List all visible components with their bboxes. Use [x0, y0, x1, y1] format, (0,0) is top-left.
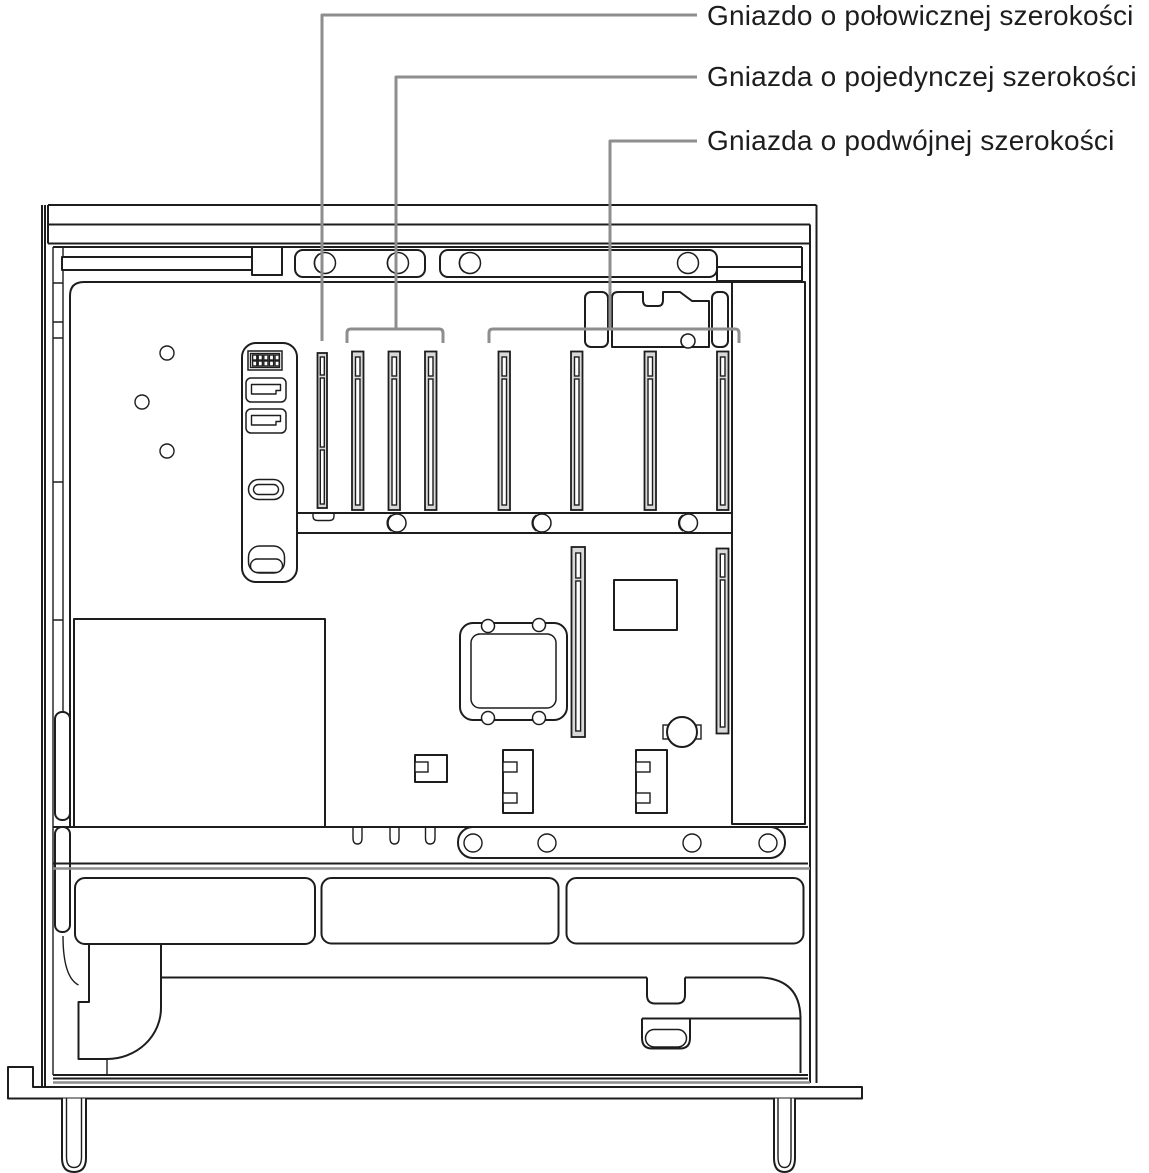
label-double-width-slots: Gniazda o podwójnej szerokości — [707, 126, 1115, 156]
cpu-bracket — [460, 619, 567, 725]
pcie-slots-single-width — [352, 352, 437, 511]
line-art — [0, 0, 1149, 1173]
label-single-width-slots: Gniazda o pojedynczej szerokości — [707, 62, 1137, 92]
foot-left — [62, 1099, 86, 1173]
usb-c-port-icon — [249, 480, 284, 500]
callout-line-single-width — [396, 77, 697, 329]
foot-right — [774, 1099, 795, 1173]
top-slide-rails — [62, 247, 802, 281]
dimm-slots — [572, 547, 729, 737]
power-button-icon — [249, 546, 285, 573]
pcie-slot-half-width — [318, 353, 328, 508]
lower-chassis-details — [53, 936, 810, 1083]
pin-grid-port-icon — [248, 351, 282, 370]
fan-modules — [75, 878, 804, 944]
pcie-slots-double-width — [499, 352, 729, 511]
io-panel — [242, 343, 297, 582]
chip — [614, 580, 677, 630]
label-half-width-slot: Gniazdo o połowicznej szerokości — [707, 1, 1134, 31]
left-wall-tabs — [55, 712, 70, 932]
power-supply-block — [74, 619, 325, 827]
slot-bracket-plate — [585, 292, 728, 348]
mid-rail-band — [53, 827, 810, 869]
screw-holes — [135, 346, 174, 458]
mac-pro-side-diagram: Gniazdo o połowicznej szerokości Gniazda… — [0, 0, 1149, 1173]
power-connectors — [415, 750, 667, 813]
displayport-icon — [246, 409, 286, 433]
slot-bottom-rail — [297, 513, 732, 533]
callout-bracket-single-width — [347, 329, 443, 343]
right-cover-panel — [732, 282, 805, 824]
displayport-icon — [246, 378, 286, 402]
battery — [663, 717, 701, 747]
